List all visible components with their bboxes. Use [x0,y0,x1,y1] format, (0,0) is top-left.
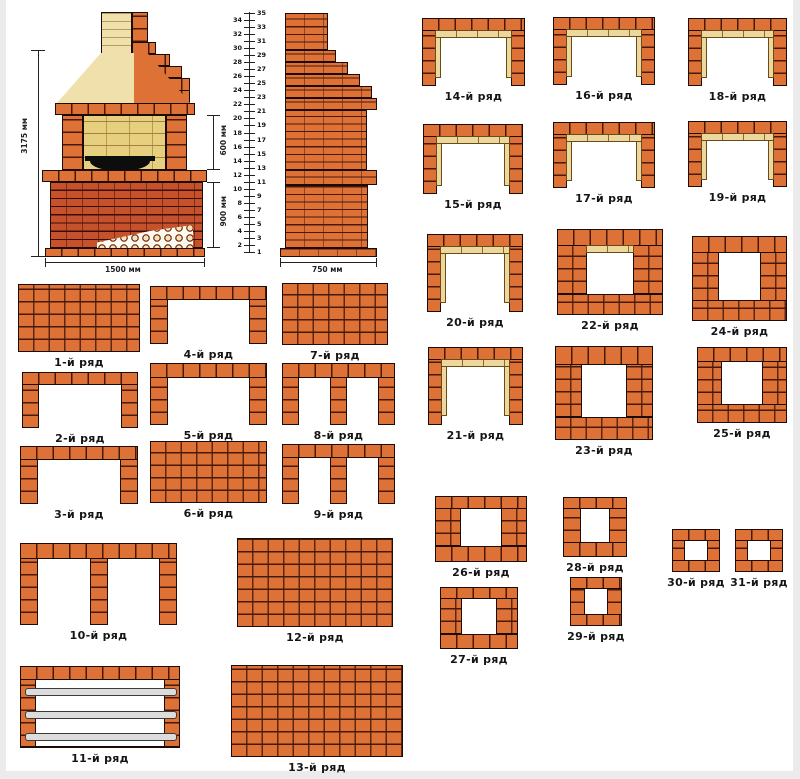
row-label-20: 20-й ряд [446,316,504,329]
side-base [280,248,377,257]
middle-pier [90,558,108,625]
firebrick-lining [701,133,774,141]
row-label-31: 31-й ряд [730,576,788,589]
row-label-14: 14-й ряд [445,90,503,103]
brick-bar [609,508,627,543]
brick-bar [672,560,720,572]
brick-bar [150,441,267,503]
ruler-number: 2 [237,241,242,249]
brick-bar [641,134,655,188]
brick-bar [557,229,663,246]
firebrick-lining [636,141,642,181]
brick-bar [688,30,702,86]
row-label-15: 15-й ряд [444,198,502,211]
brick-bar [697,404,787,423]
brick-bar [249,377,267,425]
row-label-18: 18-й ряд [709,90,767,103]
dim-tick [45,258,46,267]
ruler-tick [244,217,255,218]
brick-bar [440,634,518,650]
row-diagram-26 [435,496,527,562]
ruler-tick [244,161,255,162]
ruler-tick [244,147,255,148]
middle-pier [330,377,347,425]
dim-line-pedestal [213,182,214,248]
row-diagram-29 [570,577,622,626]
ruler-tick [244,111,255,112]
dim-line-width [45,262,205,263]
brick-bar [697,361,722,405]
row-diagram-14 [422,18,525,86]
firebrick-lining [440,253,446,303]
brick-bar [557,294,663,316]
metal-rod [25,711,177,719]
plinth-course [45,248,205,257]
ruler-number: 15 [257,150,266,158]
ruler-number: 20 [233,114,242,122]
row-diagram-4 [150,286,267,344]
ruler-tick [244,175,255,176]
row-diagram-15 [423,124,523,194]
row-diagram-21 [428,347,523,425]
row-label-11: 11-й ряд [71,752,129,765]
ruler-number: 5 [257,220,262,228]
brick-bar [692,236,787,253]
dim-tick [31,256,45,257]
metal-rod [25,733,177,741]
ruler-tick [244,62,255,63]
brick-bar [553,134,567,188]
ruler-number: 7 [257,206,262,214]
brick-bar [121,384,138,428]
ruler-number: 35 [257,9,266,17]
row-label-8: 8-й ряд [314,429,364,442]
firebrick-lining [435,30,512,38]
ruler-number: 33 [257,23,266,31]
firebrick-lining [506,37,512,78]
ruler-tick [244,55,255,56]
ruler-number: 34 [233,16,242,24]
side-step [285,62,348,74]
row-diagram-23 [555,346,653,440]
ruler-number: 10 [233,185,242,193]
row-label-28: 28-й ряд [566,561,624,574]
firebrick-lining [701,30,774,38]
brick-bar [563,508,581,543]
page-edge-left [0,0,6,779]
ruler-number: 17 [257,136,266,144]
row-label-6: 6-й ряд [184,507,234,520]
dim-tick [280,258,281,267]
firebrick-lining [435,37,441,78]
ruler-tick [244,133,255,134]
ruler-tick [244,27,255,28]
brick-bar [688,133,702,187]
row-diagram-9 [282,444,395,504]
brick-bar [509,246,523,312]
firebrick-lining [504,253,510,303]
row-diagram-7 [282,283,388,345]
brick-bar [282,444,395,458]
ruler-tick [244,97,255,98]
ruler-number: 1 [257,248,262,256]
row-label-9: 9-й ряд [314,508,364,521]
row-diagram-22 [557,229,663,315]
brick-bar [150,299,168,344]
side-step [285,86,372,98]
brick-bar [22,372,138,385]
row-label-21: 21-й ряд [447,429,505,442]
ruler-number: 25 [257,79,266,87]
brick-bar [496,598,518,634]
page-edge-bottom [0,771,800,779]
brick-bar [150,363,267,378]
brick-bar [555,417,653,441]
ruler-tick [244,252,255,253]
brick-bar [18,284,140,352]
ruler-tick [244,118,255,119]
ruler-number: 4 [237,227,242,235]
row-label-25: 25-й ряд [713,427,771,440]
side-cornice [285,98,377,110]
brick-bar [435,546,527,563]
side-chimney-top [285,13,328,50]
row-diagram-2 [22,372,138,428]
ruler-tick [244,125,255,126]
firebrick-lining [566,141,572,181]
brick-bar [555,364,582,418]
dim-label-side-width: 750 мм [312,265,343,274]
row-label-26: 26-й ряд [452,566,510,579]
dim-tick [207,182,220,183]
dim-tick [207,169,220,170]
ruler-tick [244,69,255,70]
brick-bar [557,245,587,294]
ruler-tick [244,154,255,155]
ruler-number: 14 [233,157,242,165]
brick-bar [231,665,403,757]
row-label-13: 13-й ряд [288,761,346,774]
brick-bar [773,30,787,86]
brick-bar [22,384,39,428]
bottom-outline [20,746,180,748]
brick-bar [20,558,38,625]
ruler-tick [244,41,255,42]
brick-bar [428,359,442,425]
row-label-30: 30-й ряд [667,576,725,589]
firebrick-lining [566,36,572,77]
firebrick-lining [768,37,774,78]
row-diagram-11 [20,666,180,748]
row-diagram-19 [688,121,787,187]
row-diagram-5 [150,363,267,425]
brick-bar [282,377,299,425]
brick-bar [692,252,719,301]
brick-bar [555,346,653,365]
ruler-tick [244,231,255,232]
row-label-1: 1-й ряд [54,356,104,369]
row-label-2: 2-й ряд [55,432,105,445]
ruler-tick [244,83,255,84]
brick-bar [697,347,787,362]
firebrick-lining [441,359,510,367]
dim-tick [31,50,45,51]
brick-bar [553,29,567,85]
row-label-17: 17-й ряд [575,192,633,205]
ruler-tick [244,245,255,246]
brick-bar [563,542,627,557]
row-label-12: 12-й ряд [286,631,344,644]
page-edge-right [793,0,800,779]
dim-label-width: 1500 мм [105,265,141,274]
firebrick-lining [701,37,707,78]
row-label-29: 29-й ряд [567,630,625,643]
row-label-4: 4-й ряд [184,348,234,361]
row-label-27: 27-й ряд [450,653,508,666]
mantle-course [55,103,195,115]
row-diagram-31 [735,529,783,572]
brick-bar [20,666,180,680]
brick-bar [20,543,177,559]
row-diagram-13 [231,665,403,757]
brick-bar [150,286,267,300]
side-ledge [285,170,377,185]
side-lower-body [285,185,368,248]
row-label-23: 23-й ряд [575,444,633,457]
brick-bar [641,29,655,85]
ruler-tick [244,90,255,91]
dim-line-side-width [280,262,377,263]
ruler-tick [244,182,255,183]
brick-bar [378,457,395,504]
side-step [285,50,336,62]
brick-bar [282,457,299,504]
side-upper-body [285,110,367,170]
ruler-number: 24 [233,86,242,94]
ruler-number: 23 [257,93,266,101]
ruler-number: 6 [237,213,242,221]
ruler-number: 19 [257,121,266,129]
brick-bar [707,540,720,561]
firebrick-lining [586,245,635,253]
row-label-19: 19-й ряд [709,191,767,204]
ruler-tick [244,224,255,225]
ruler-tick [244,34,255,35]
row-diagram-28 [563,497,627,557]
row-label-22: 22-й ряд [581,319,639,332]
ruler-tick [244,20,255,21]
row-diagram-20 [427,234,523,312]
firebrick-lining [566,134,642,142]
firebox-left-pier [62,115,83,170]
brick-bar [249,299,267,344]
brick-bar [626,364,653,418]
ruler-tick [244,196,255,197]
row-diagram-3 [20,446,138,504]
firebrick-lining [504,143,510,186]
dim-tick [376,258,377,267]
ruler-number: 26 [233,72,242,80]
brick-bar [440,598,462,634]
brick-bar [509,359,523,425]
row-diagram-30 [672,529,720,572]
ruler-tick [244,168,255,169]
brick-course-diagram-sheet: 3175 мм 600 мм 900 мм 1500 мм 750 мм 1-й… [0,0,800,779]
brick-bar [150,377,168,425]
ruler-number: 31 [257,37,266,45]
row-diagram-25 [697,347,787,423]
brick-bar [427,246,441,312]
firebrick-lining [636,36,642,77]
brick-bar [570,588,585,615]
firebrick-lining [504,366,510,416]
brick-bar [435,508,461,546]
ruler-number: 9 [257,192,262,200]
middle-pier [330,457,347,504]
ruler-tick [244,140,255,141]
brick-bar [378,377,395,425]
row-diagram-24 [692,236,787,321]
dim-label-pedestal: 900 мм [219,196,228,227]
shelf-course [42,170,207,182]
chimney-step [132,42,156,54]
row-label-16: 16-й ряд [575,89,633,102]
firebrick-lining [566,29,642,37]
ruler-number: 3 [257,234,262,242]
brick-bar [735,540,748,561]
brick-bar [423,136,437,194]
ruler-number: 27 [257,65,266,73]
row-diagram-8 [282,363,395,425]
ruler-number: 12 [233,171,242,179]
ruler-number: 29 [257,51,266,59]
firebrick-lining [441,366,447,416]
dim-line-height [38,50,39,257]
ruler-number: 11 [257,178,266,186]
brick-bar [422,30,436,86]
metal-rod [25,688,177,696]
ruler-number: 16 [233,143,242,151]
dim-tick [207,115,220,116]
row-label-3: 3-й ряд [54,508,104,521]
row-diagram-10 [20,543,177,625]
row-diagram-27 [440,587,518,649]
brick-bar [570,614,622,626]
ruler-number: 22 [233,100,242,108]
brick-bar [760,252,787,301]
firebox-right-pier [166,115,187,170]
ruler-number: 28 [233,58,242,66]
ruler-number: 21 [257,107,266,115]
ruler-number: 8 [237,199,242,207]
row-label-24: 24-й ряд [711,325,769,338]
row-diagram-1 [18,284,140,352]
brick-bar [633,245,663,294]
brick-bar [607,588,622,615]
brick-bar [509,136,523,194]
ruler-tick [244,203,255,204]
brick-bar [511,30,525,86]
dim-label-height: 3175 мм [20,118,29,154]
ruler-tick [244,48,255,49]
brick-bar [20,459,38,504]
row-label-7: 7-й ряд [310,349,360,362]
dim-tick [207,247,220,248]
brick-bar [762,361,787,405]
brick-bar [282,283,388,345]
brick-bar [237,538,393,627]
row-diagram-6 [150,441,267,503]
brick-bar [773,133,787,187]
ruler-number: 30 [233,44,242,52]
firebrick-lining [436,143,442,186]
ruler-tick [244,189,255,190]
row-diagram-12 [237,538,393,627]
brick-bar [20,446,138,460]
firebrick-lining [701,140,707,180]
firebrick-lining [440,246,510,254]
ruler-tick [244,238,255,239]
brick-bar [501,508,527,546]
dim-tick [204,258,205,267]
dim-label-firebox: 600 мм [219,125,228,156]
dim-line-firebox [213,115,214,170]
ruler-tick [244,104,255,105]
brick-bar [672,540,685,561]
brick-bar [770,540,783,561]
brick-bar [282,363,395,378]
ruler-tick [244,13,255,14]
firebrick-lining [436,136,510,144]
ruler-tick [244,76,255,77]
row-diagram-18 [688,18,787,86]
ruler-tick [244,210,255,211]
brick-bar [692,300,787,321]
row-diagram-16 [553,17,655,85]
chimney-flue-left [101,12,132,54]
side-step [285,74,360,86]
ruler-number: 32 [233,30,242,38]
brick-bar [120,459,138,504]
row-label-10: 10-й ряд [70,629,128,642]
ruler-number: 13 [257,164,266,172]
brick-bar [735,560,783,572]
firebrick-lining [768,140,774,180]
brick-bar [159,558,177,625]
row-diagram-17 [553,122,655,188]
ruler-number: 18 [233,129,242,137]
